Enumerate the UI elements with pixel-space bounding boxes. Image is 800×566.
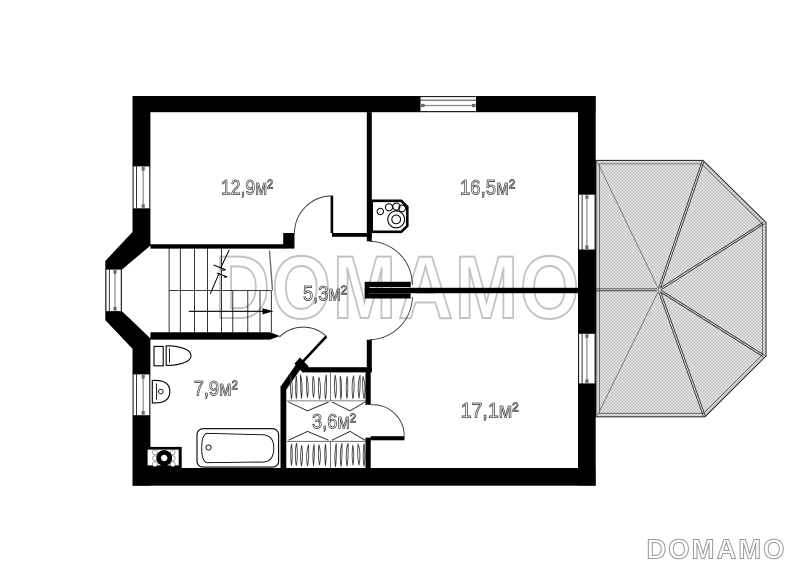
svg-text:3,6м²: 3,6м² [312,410,356,434]
svg-text:12,9м²: 12,9м² [221,176,273,200]
svg-text:7,9м²: 7,9м² [194,377,238,401]
svg-text:5,3м²: 5,3м² [303,282,347,306]
svg-text:17,1м²: 17,1м² [461,399,519,423]
svg-text:DOMAMO: DOMAMO [647,534,787,565]
svg-text:16,5м²: 16,5м² [460,176,515,200]
